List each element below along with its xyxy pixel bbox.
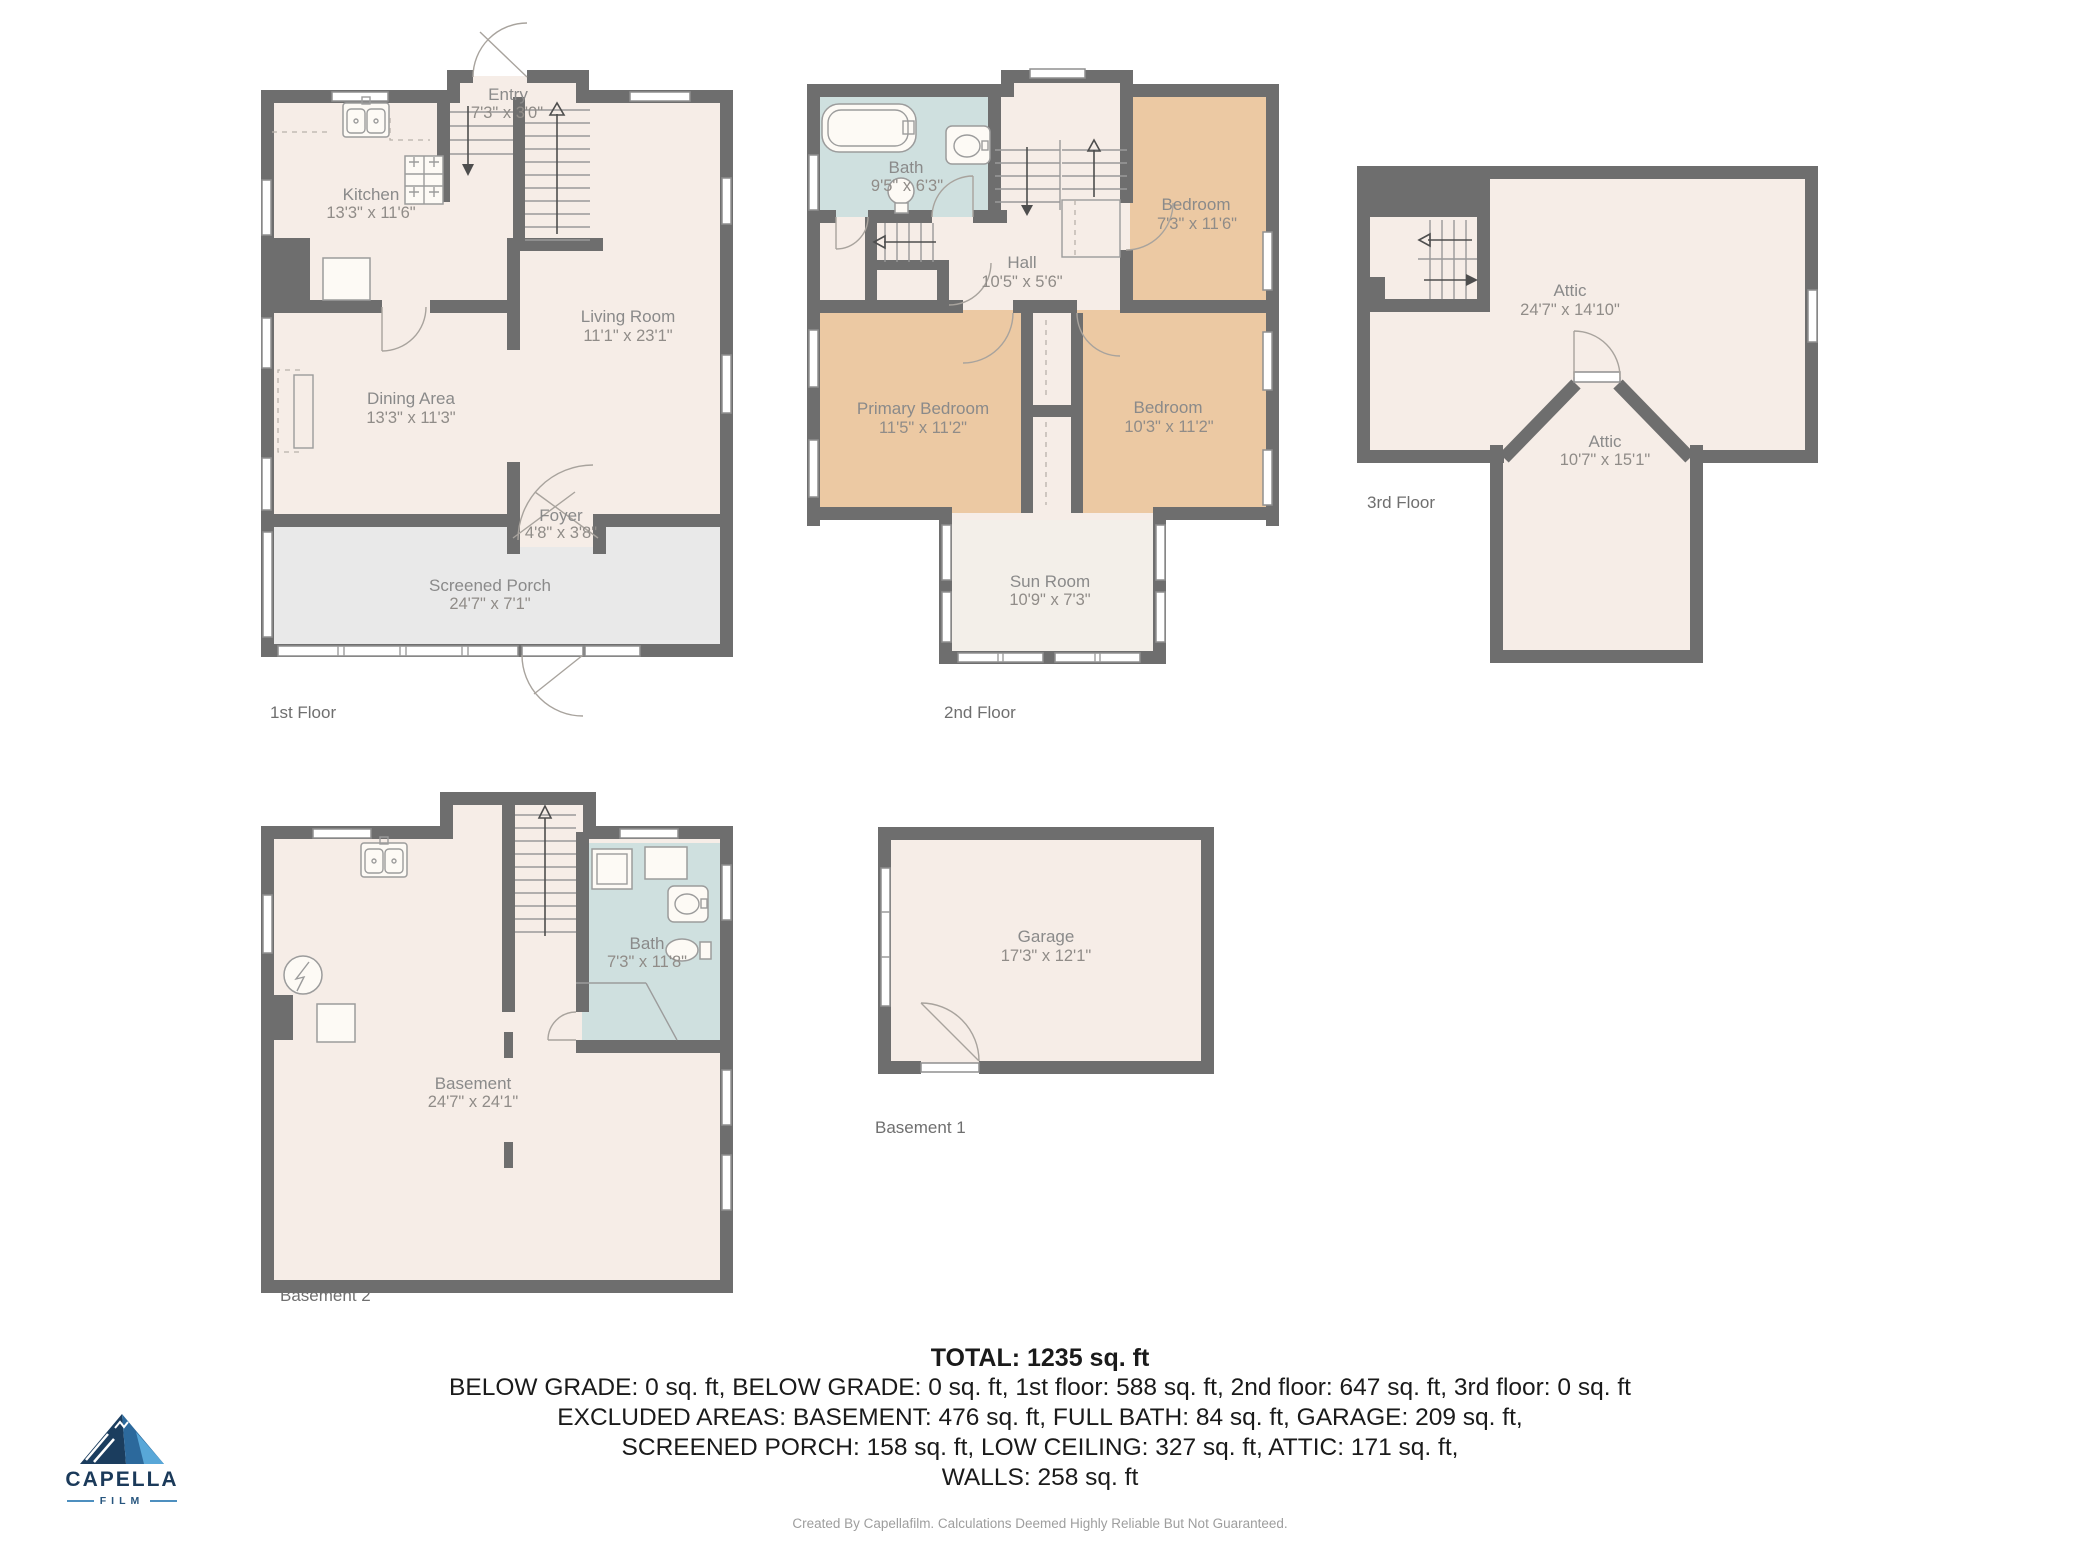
sink-icon	[343, 97, 389, 137]
mountain-icon	[70, 1412, 174, 1466]
room-dims: 7'3" x 11'6"	[1157, 215, 1237, 233]
basement2-plan: Bath 7'3" x 11'8" Basement 24'7" x 24'1"…	[261, 792, 733, 1305]
third-floor-plan: Attic 24'7" x 14'10" Attic 10'7" x 15'1"…	[1357, 166, 1818, 663]
refrigerator-icon	[323, 258, 370, 300]
room-label: Screened Porch	[429, 576, 551, 595]
room-label: Entry	[488, 85, 528, 104]
disclaimer-text: Created By Capellafilm. Calculations Dee…	[0, 1516, 2080, 1531]
room-dims: 17'3" x 12'1"	[1001, 947, 1092, 965]
room-label: Dining Area	[367, 389, 455, 408]
floor-label-2nd: 2nd Floor	[944, 703, 1016, 722]
room-dims: 10'3" x 11'2"	[1124, 418, 1213, 436]
room-dims: 24'7" x 24'1"	[428, 1093, 519, 1111]
stove-icon	[405, 156, 443, 204]
electrical-panel-icon	[284, 956, 322, 994]
room-dims: 7'3" x 3'0"	[471, 104, 543, 122]
room-label: Bath	[889, 158, 924, 177]
room-dims: 10'7" x 15'1"	[1560, 451, 1651, 469]
room-label: Foyer	[539, 506, 583, 525]
area-summary: TOTAL: 1235 sq. ft BELOW GRADE: 0 sq. ft…	[0, 1343, 2080, 1493]
floor-label-3rd: 3rd Floor	[1367, 493, 1435, 512]
floor-label-1st: 1st Floor	[270, 703, 336, 722]
summary-line: BELOW GRADE: 0 sq. ft, BELOW GRADE: 0 sq…	[0, 1373, 2080, 1403]
room-label: Garage	[1018, 927, 1075, 946]
sink-icon	[946, 126, 990, 164]
floorplan-page: Entry 7'3" x 3'0" Kitchen 13'3" x 11'6" …	[0, 0, 2080, 1560]
room-dims: 4'8" x 3'8"	[525, 524, 597, 542]
room-dims: 9'5" x 6'3"	[871, 177, 943, 195]
room-dims: 24'7" x 7'1"	[449, 595, 530, 613]
washer-icon	[592, 849, 632, 889]
floor-plan-canvas: Entry 7'3" x 3'0" Kitchen 13'3" x 11'6" …	[0, 0, 2080, 1560]
summary-line: SCREENED PORCH: 158 sq. ft, LOW CEILING:…	[0, 1433, 2080, 1463]
room-dims: 7'3" x 11'8"	[607, 953, 687, 971]
logo-rule-left	[67, 1500, 94, 1502]
floor-label-basement1: Basement 1	[875, 1118, 966, 1137]
basement1-plan: Garage 17'3" x 12'1" Basement 1	[875, 827, 1214, 1137]
room-dims: 10'5" x 5'6"	[981, 273, 1062, 291]
room-label: Primary Bedroom	[857, 399, 989, 418]
window-icon	[1808, 290, 1817, 342]
dryer-icon	[645, 847, 687, 879]
logo-subtitle-text: FILM	[100, 1495, 145, 1507]
floor-label-basement2: Basement 2	[280, 1286, 371, 1305]
logo-brand-text: CAPELLA	[55, 1468, 189, 1492]
summary-line: WALLS: 258 sq. ft	[0, 1463, 2080, 1493]
room-label: Bath	[630, 934, 665, 953]
room-label: Sun Room	[1010, 572, 1090, 591]
room-dims: 11'5" x 11'2"	[879, 419, 967, 437]
first-floor-plan: Entry 7'3" x 3'0" Kitchen 13'3" x 11'6" …	[261, 23, 733, 722]
capella-film-logo: CAPELLA FILM	[55, 1412, 189, 1507]
second-floor-plan: Bath 9'5" x 6'3" Hall 10'5" x 5'6" Bedro…	[807, 69, 1279, 722]
room-label: Hall	[1007, 253, 1036, 272]
sink-icon	[361, 837, 407, 877]
sink-icon	[668, 886, 708, 922]
room-dims: 13'3" x 11'6"	[326, 204, 415, 222]
logo-rule-right	[150, 1500, 177, 1502]
room-label: Attic	[1588, 432, 1622, 451]
room-label: Bedroom	[1134, 398, 1203, 417]
basement1-windows	[881, 868, 890, 1006]
room-dims: 24'7" x 14'10"	[1520, 301, 1620, 319]
room-label: Bedroom	[1162, 195, 1231, 214]
room-label: Basement	[435, 1074, 512, 1093]
room-label: Living Room	[581, 307, 676, 326]
room-label: Attic	[1553, 281, 1587, 300]
water-heater-icon	[317, 1004, 355, 1042]
summary-total: TOTAL: 1235 sq. ft	[0, 1343, 2080, 1373]
room-dims: 10'9" x 7'3"	[1009, 591, 1090, 609]
room-label: Kitchen	[343, 185, 400, 204]
room-dims: 13'3" x 11'3"	[366, 409, 455, 427]
room-dims: 11'1" x 23'1"	[583, 327, 672, 345]
bathtub-icon	[822, 104, 916, 152]
summary-line: EXCLUDED AREAS: BASEMENT: 476 sq. ft, FU…	[0, 1403, 2080, 1433]
